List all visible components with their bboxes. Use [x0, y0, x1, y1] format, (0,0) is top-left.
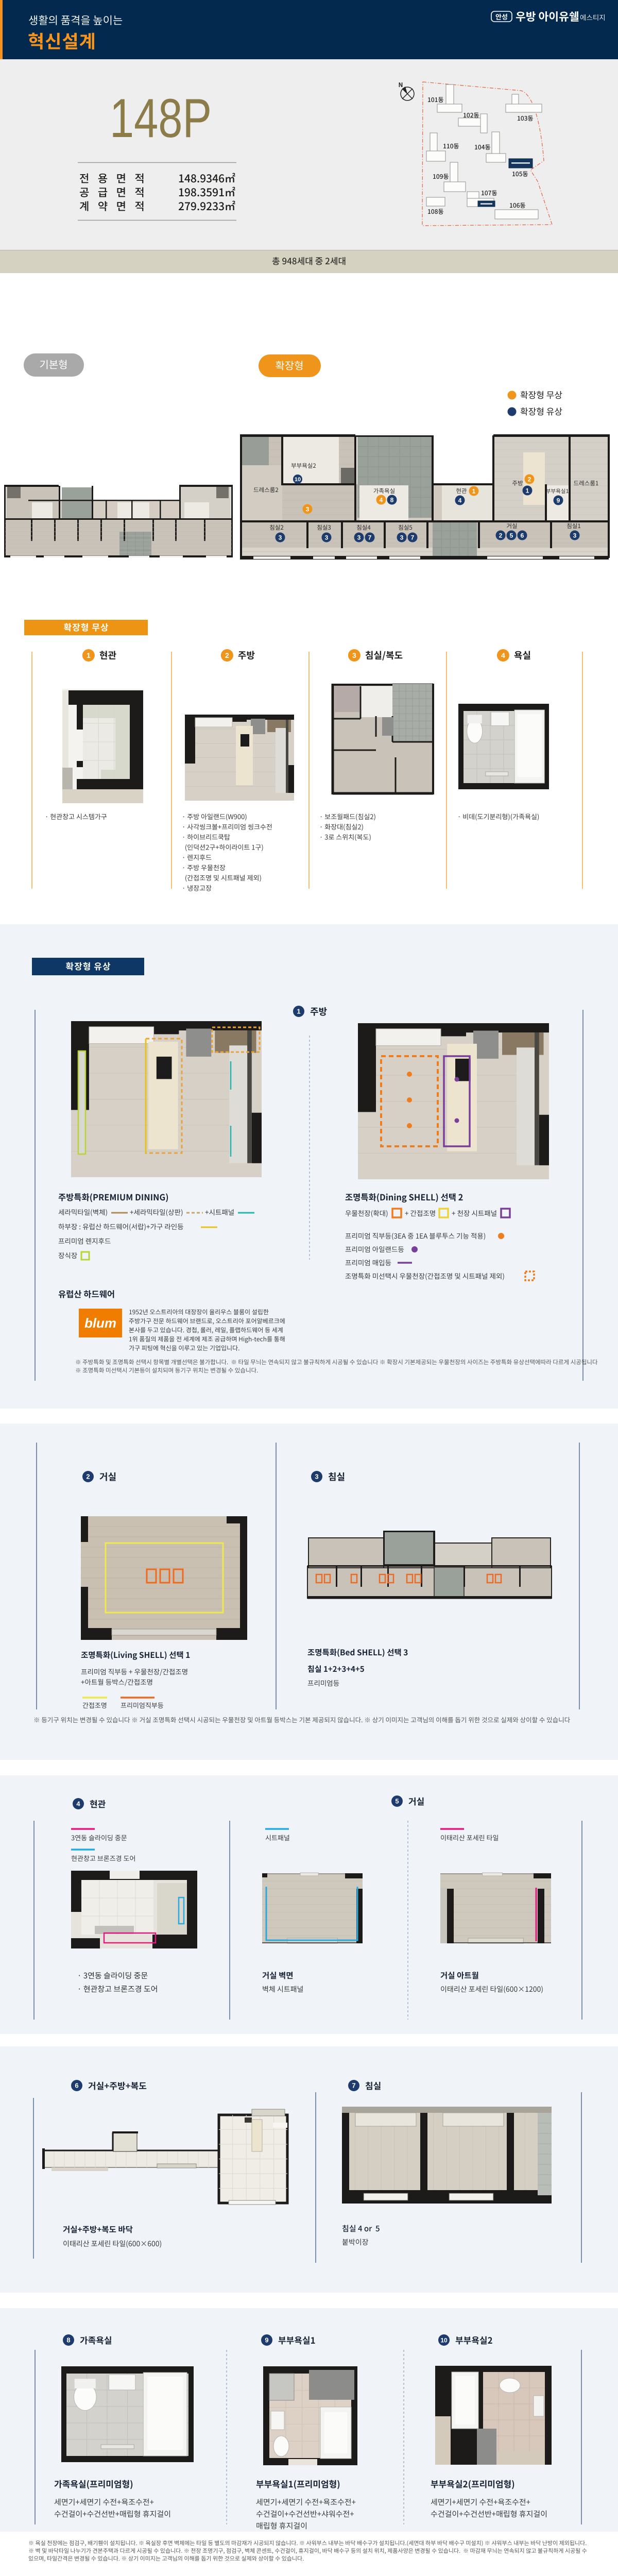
svg-text:1: 1 — [526, 487, 529, 494]
svg-text:4: 4 — [458, 497, 462, 504]
svg-text:2: 2 — [499, 532, 503, 539]
svg-text:2: 2 — [528, 476, 531, 483]
svg-text:3: 3 — [315, 1473, 318, 1481]
svg-text:blum: blum — [84, 1315, 116, 1331]
svg-text:1: 1 — [297, 1008, 300, 1015]
svg-text:6: 6 — [521, 532, 524, 539]
svg-text:8: 8 — [66, 2336, 70, 2344]
svg-text:3: 3 — [573, 532, 577, 539]
svg-text:7: 7 — [368, 534, 372, 541]
svg-text:1: 1 — [472, 487, 476, 495]
svg-text:3: 3 — [352, 651, 356, 659]
svg-text:2: 2 — [86, 1473, 90, 1481]
svg-text:2: 2 — [225, 651, 229, 659]
svg-text:148P: 148P — [110, 87, 212, 149]
svg-text:3: 3 — [325, 534, 329, 541]
svg-text:4: 4 — [501, 651, 505, 659]
svg-text:8: 8 — [390, 496, 394, 503]
svg-text:10: 10 — [440, 2336, 448, 2344]
svg-text:5: 5 — [510, 532, 513, 539]
svg-text:3: 3 — [400, 534, 404, 541]
svg-text:9: 9 — [557, 497, 560, 504]
svg-text:7: 7 — [352, 2082, 355, 2090]
svg-text:6: 6 — [75, 2082, 78, 2090]
svg-text:3: 3 — [306, 505, 310, 513]
svg-text:5: 5 — [395, 1798, 399, 1805]
svg-text:10: 10 — [295, 477, 301, 483]
svg-text:9: 9 — [265, 2336, 268, 2344]
svg-text:4: 4 — [380, 496, 383, 503]
svg-text:3: 3 — [357, 534, 361, 541]
svg-text:7: 7 — [411, 534, 415, 541]
svg-text:3: 3 — [279, 534, 282, 541]
svg-text:4: 4 — [76, 1800, 80, 1808]
svg-text:1: 1 — [87, 651, 91, 659]
